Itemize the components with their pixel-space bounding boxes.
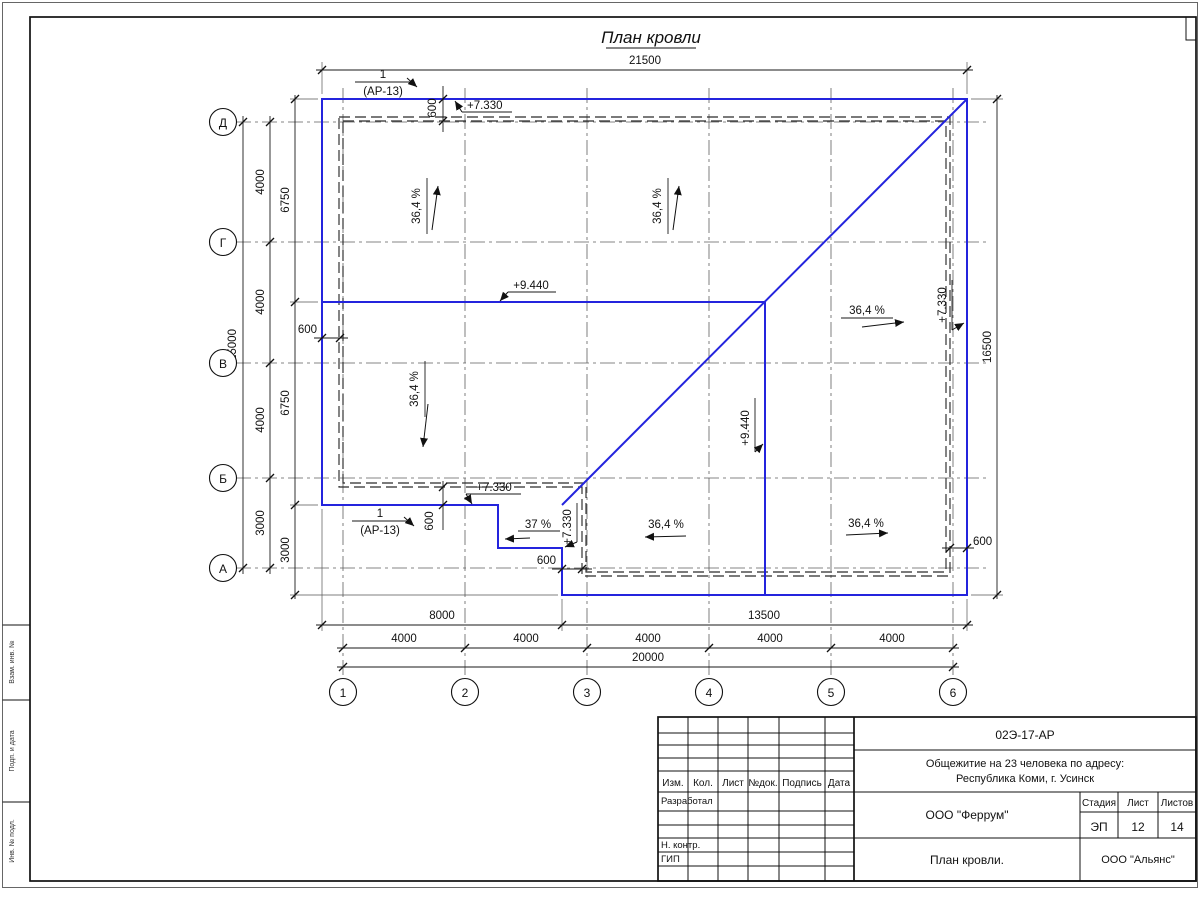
elevation-value: +9.440 xyxy=(740,410,752,446)
axis-row-label: В xyxy=(219,357,227,371)
dim-bottom-total: 20000 xyxy=(337,652,959,671)
elevation-mark-left-eave: +7.330 xyxy=(466,482,521,504)
axis-col-label: 4 xyxy=(706,686,713,700)
dim-label: 4000 xyxy=(879,633,905,645)
corner-doc-box xyxy=(1186,17,1196,40)
callout-number: 1 xyxy=(377,508,383,520)
axis-col-label: 1 xyxy=(340,686,347,700)
dim-right-total: 16500 xyxy=(971,95,1003,599)
axis-row-label: А xyxy=(219,562,227,576)
dim-left-axis-chain: 4000 4000 4000 3000 xyxy=(255,116,274,574)
dim-label: 6750 xyxy=(280,187,292,213)
dim-label: 3000 xyxy=(255,510,267,536)
axis-grid-lines xyxy=(236,88,988,678)
callout-reference: (АР-13) xyxy=(360,525,400,537)
slope-label-top-left: 36,4 % xyxy=(411,178,438,234)
axis-col-label: 6 xyxy=(950,686,957,700)
elevation-mark-porch: +7.330 xyxy=(562,503,577,547)
dim-label: 13500 xyxy=(748,610,780,622)
drawing-name: План кровли. xyxy=(930,853,1004,867)
contractor-organization: ООО "Альянс" xyxy=(1101,854,1175,866)
dim-label: 4000 xyxy=(513,633,539,645)
elevation-value: +7.330 xyxy=(937,287,949,323)
project-name-line1: Общежитие на 23 человека по адресу: xyxy=(926,758,1124,770)
revision-col-header: Дата xyxy=(828,778,851,789)
titleblock-role: Разработал xyxy=(661,796,713,807)
margin-label: Подп. и дата xyxy=(9,730,16,771)
slope-value: 36,4 % xyxy=(648,519,684,531)
slope-value: 37 % xyxy=(525,519,551,531)
titleblock-role: Н. контр. xyxy=(661,840,700,851)
dim-label: 600 xyxy=(973,536,992,548)
revision-col-header: Изм. xyxy=(662,778,683,789)
revision-col-header: Подпись xyxy=(782,778,822,789)
elevation-mark-ridge-right: +9.440 xyxy=(740,398,763,452)
roof-plan-canvas: Взам. инв. № Подп. и дата Инв. № подл. П… xyxy=(0,0,1200,900)
axis-row-label: Б xyxy=(219,472,227,486)
axis-col-label: 2 xyxy=(462,686,469,700)
axis-col-label: 3 xyxy=(584,686,591,700)
margin-label: Инв. № подл. xyxy=(9,819,16,863)
dim-label: 600 xyxy=(424,511,436,530)
slope-value: 36,4 % xyxy=(848,518,884,530)
dim-label: 4000 xyxy=(757,633,783,645)
section-callout-bottom: 1 (АР-13) xyxy=(352,508,414,537)
margin-label: Взам. инв. № xyxy=(9,640,16,683)
elevation-value: +7.330 xyxy=(467,100,503,112)
building-wall-outline xyxy=(339,117,950,576)
sheets-total: 14 xyxy=(1170,820,1184,834)
slope-label-bottom-right: 36,4 % xyxy=(846,518,888,535)
stage-value: ЭП xyxy=(1090,820,1107,834)
slope-value: 36,4 % xyxy=(411,188,423,224)
dim-label: 4000 xyxy=(255,407,267,433)
drawing-sheet: Взам. инв. № Подп. и дата Инв. № подл. П… xyxy=(0,0,1200,900)
design-organization: ООО "Феррум" xyxy=(926,808,1009,822)
dim-step-overhang: 600 xyxy=(537,555,592,573)
slope-value: 36,4 % xyxy=(849,305,885,317)
slope-label-top-middle: 36,4 % xyxy=(652,178,679,234)
stage-header: Стадия xyxy=(1082,798,1116,809)
slope-label-bottom-left: 36,4 % xyxy=(409,361,428,447)
callout-number: 1 xyxy=(380,69,386,81)
dim-label: 4000 xyxy=(635,633,661,645)
margin-stamp-labels: Взам. инв. № Подп. и дата Инв. № подл. xyxy=(9,640,16,862)
titleblock-role: ГИП xyxy=(661,854,680,865)
sheet-number: 12 xyxy=(1131,820,1145,834)
project-name-line2: Республика Коми, г. Усинск xyxy=(956,773,1094,785)
slope-label-right: 36,4 % xyxy=(841,305,904,327)
dim-label: 20000 xyxy=(632,652,664,664)
dim-label: 600 xyxy=(298,324,317,336)
axis-markers-cols: 1 2 3 4 5 6 xyxy=(330,679,967,706)
slope-value: 36,4 % xyxy=(409,371,421,407)
dim-label: 4000 xyxy=(391,633,417,645)
elevation-value: +9.440 xyxy=(513,280,549,292)
dim-left-total: 15000 xyxy=(227,116,247,574)
slope-label-bottom-middle: 36,4 % xyxy=(645,519,686,537)
section-callout-top: 1 (АР-13) xyxy=(355,69,417,98)
dim-label: 600 xyxy=(427,98,439,117)
elevation-value: +7.330 xyxy=(476,482,512,494)
dim-label: 4000 xyxy=(255,169,267,195)
sheets-header: Листов xyxy=(1161,798,1194,809)
revision-col-header: Кол. xyxy=(693,778,713,789)
elevation-mark-top: +7.330 xyxy=(455,100,512,112)
dim-label: 8000 xyxy=(429,610,455,622)
dim-label: 3000 xyxy=(280,537,292,563)
drawing-title: План кровли xyxy=(601,28,701,47)
document-number: 02Э-17-АР xyxy=(995,728,1054,742)
dim-label: 600 xyxy=(537,555,556,567)
dim-top-overhang: 600 xyxy=(427,86,447,132)
dim-label: 21500 xyxy=(629,55,661,67)
slope-value: 36,4 % xyxy=(652,188,664,224)
revision-col-header: Лист xyxy=(722,778,744,789)
dim-label: 16500 xyxy=(982,331,994,363)
dim-label: 4000 xyxy=(255,289,267,315)
elevation-mark-ridge-left: +9.440 xyxy=(500,280,556,301)
elevation-value: +7.330 xyxy=(562,509,574,545)
sheet-frame xyxy=(3,3,1198,888)
axis-row-label: Д xyxy=(219,116,227,130)
dim-label: 6750 xyxy=(280,390,292,416)
sheet-header: Лист xyxy=(1127,798,1149,809)
title-block: Изм. Кол. Лист №док. Подпись Дата Разраб… xyxy=(658,717,1196,881)
dim-top-total: 21500 xyxy=(316,55,973,94)
slope-label-porch: 37 % xyxy=(505,519,560,539)
revision-col-header: №док. xyxy=(748,778,777,789)
dim-bottom-axis-chain: 4000 4000 4000 4000 4000 xyxy=(337,633,959,652)
axis-col-label: 5 xyxy=(828,686,835,700)
axis-row-label: Г xyxy=(220,236,227,250)
callout-reference: (АР-13) xyxy=(363,86,403,98)
